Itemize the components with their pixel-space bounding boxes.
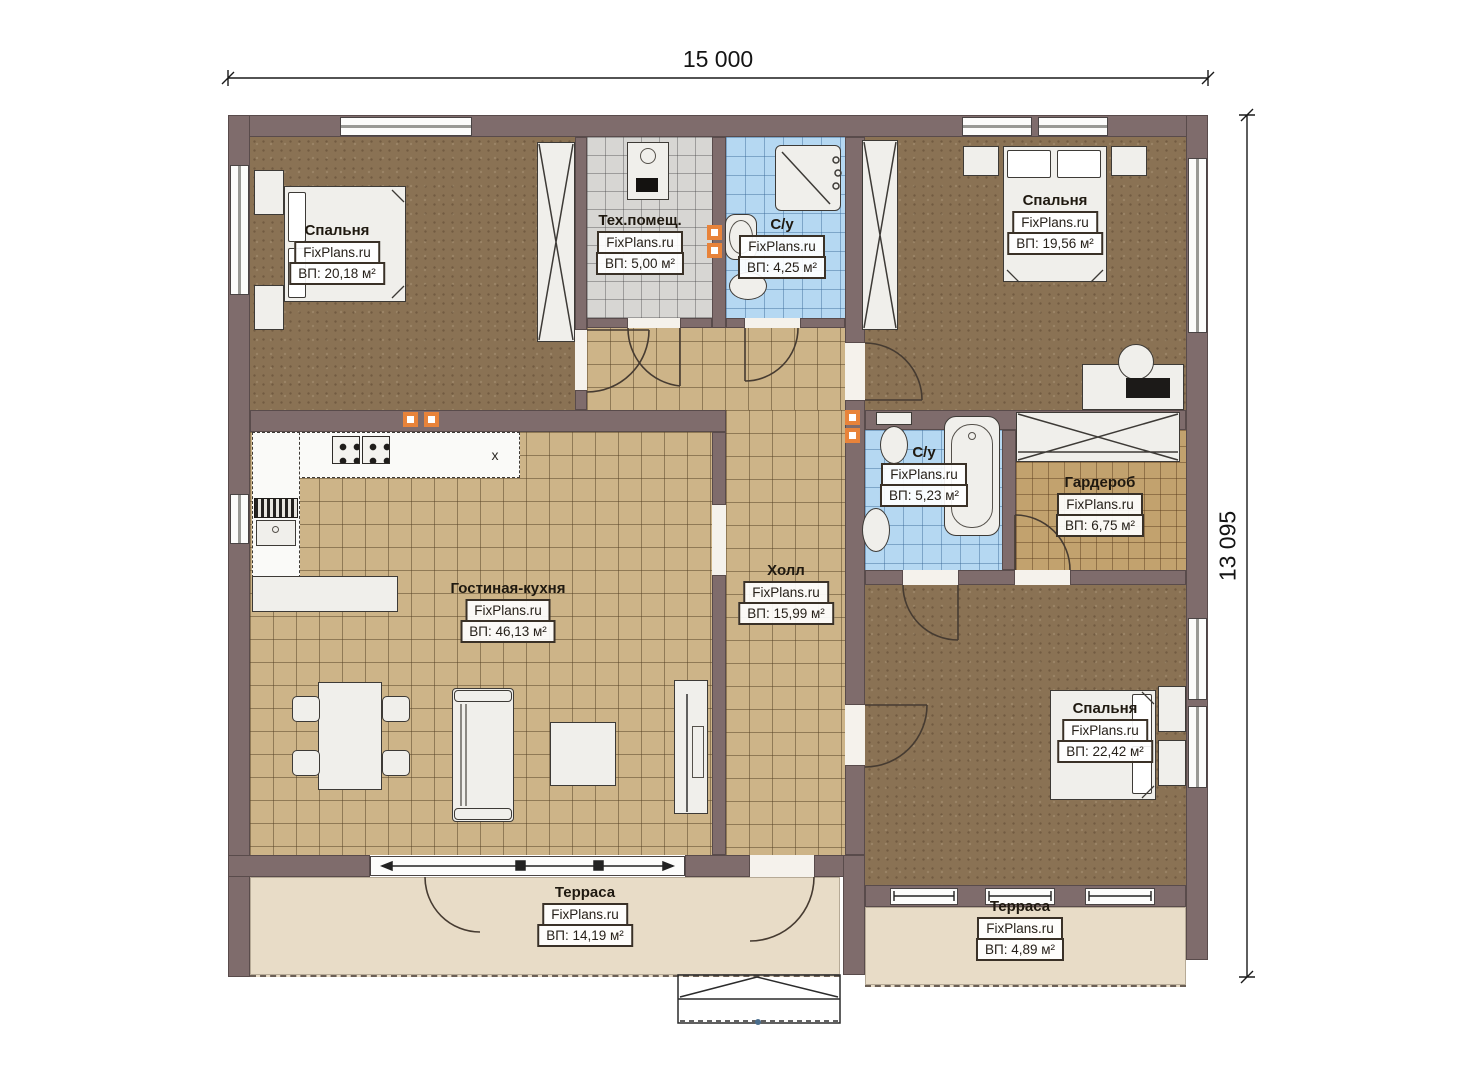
window	[340, 117, 472, 136]
room-name: Спальня	[1057, 700, 1153, 717]
room-label-living: Гостиная-кухня FixPlans.ru ВП: 46,13 м²	[451, 580, 566, 643]
wall-tech-bottom	[680, 318, 712, 328]
nightstand	[254, 285, 284, 330]
door-opening	[745, 318, 800, 328]
room-label-terrace2: Терраса FixPlans.ru ВП: 4,89 м²	[976, 898, 1064, 961]
watermark: FixPlans.ru	[977, 917, 1063, 940]
watermark: FixPlans.ru	[1062, 719, 1148, 742]
wall-bath2-bottom	[865, 570, 903, 585]
wall-bedroom1-right	[575, 137, 587, 330]
nightstand	[1158, 740, 1186, 786]
sofa	[452, 688, 514, 822]
room-label-hall: Холл FixPlans.ru ВП: 15,99 м²	[738, 562, 834, 625]
wall-bath1-bottom	[726, 318, 745, 328]
room-label-terrace1: Терраса FixPlans.ru ВП: 14,19 м²	[537, 884, 633, 947]
bathtub-drain	[968, 432, 976, 440]
room-name: Спальня	[289, 222, 385, 239]
room-area: ВП: 14,19 м²	[537, 924, 633, 947]
shower-cabin	[775, 145, 841, 211]
window	[1038, 117, 1108, 136]
toilet-tank	[876, 412, 912, 425]
room-area: ВП: 22,42 м²	[1057, 740, 1153, 763]
room-label-wardrobe: Гардероб FixPlans.ru ВП: 6,75 м²	[1056, 474, 1144, 537]
wall-bath1-bottom	[800, 318, 845, 328]
room-name: Тех.помещ.	[596, 212, 684, 229]
floor-hall	[726, 410, 845, 855]
room-area: ВП: 4,89 м²	[976, 938, 1064, 961]
terrace-window	[1085, 888, 1155, 905]
room-label-bath2: С/у FixPlans.ru ВП: 5,23 м²	[880, 444, 968, 507]
nightstand	[963, 146, 999, 176]
room-area: ВП: 6,75 м²	[1056, 514, 1144, 537]
pillow	[1057, 150, 1101, 178]
room-label-bedroom2: Спальня FixPlans.ru ВП: 19,56 м²	[1007, 192, 1103, 255]
room-name: С/у	[738, 216, 826, 233]
door-opening	[628, 318, 680, 328]
room-area: ВП: 46,13 м²	[460, 620, 556, 643]
kitchen-appliance-marker: x	[470, 432, 520, 478]
door-opening	[903, 570, 958, 585]
room-area: ВП: 4,25 м²	[738, 256, 826, 279]
watermark: FixPlans.ru	[1012, 211, 1098, 234]
watermark: FixPlans.ru	[465, 599, 551, 622]
kitchen-sink	[256, 520, 296, 546]
room-name: Терраса	[976, 898, 1064, 915]
room-area: ВП: 5,00 м²	[596, 252, 684, 275]
wall-bath2-wardrobe-divider	[1002, 430, 1016, 570]
room-area: ВП: 20,18 м²	[289, 262, 385, 285]
wall-terrace-divider	[843, 855, 865, 975]
door-opening	[845, 705, 865, 765]
watermark: FixPlans.ru	[743, 581, 829, 604]
stove-burners	[362, 436, 390, 464]
nightstand	[1111, 146, 1147, 176]
window	[230, 494, 249, 544]
watermark: FixPlans.ru	[1057, 493, 1143, 516]
room-area: ВП: 15,99 м²	[738, 602, 834, 625]
vent-marker	[845, 410, 860, 425]
kitchen-island	[252, 576, 398, 612]
room-name: Гостиная-кухня	[451, 580, 566, 597]
dining-table	[318, 682, 382, 790]
dish-rack	[254, 498, 298, 518]
nightstand	[254, 170, 284, 215]
room-label-bedroom3: Спальня FixPlans.ru ВП: 22,42 м²	[1057, 700, 1153, 763]
vent-marker	[845, 428, 860, 443]
dining-chair	[292, 696, 320, 722]
watermark: FixPlans.ru	[881, 463, 967, 486]
passage-opening	[712, 505, 726, 575]
wall-bottom	[228, 855, 370, 877]
sofa-armrest	[454, 808, 512, 820]
sofa-armrest	[454, 690, 512, 702]
watermark: FixPlans.ru	[597, 231, 683, 254]
window	[962, 117, 1032, 136]
room-label-bedroom1: Спальня FixPlans.ru ВП: 20,18 м²	[289, 222, 385, 285]
room-name: Спальня	[1007, 192, 1103, 209]
wardrobe-closet	[1016, 412, 1180, 462]
sliding-terrace-door	[370, 856, 685, 876]
coffee-table	[550, 722, 616, 786]
room-name: Гардероб	[1056, 474, 1144, 491]
wall-wardrobe-bottom	[1070, 570, 1186, 585]
wall-bath2-bottom	[958, 570, 1015, 585]
room-area: ВП: 5,23 м²	[880, 484, 968, 507]
dining-chair	[382, 750, 410, 776]
wardrobe-closet	[862, 140, 898, 330]
bathroom-sink	[862, 508, 890, 552]
stove-burners	[332, 436, 360, 464]
door-opening	[1015, 570, 1070, 585]
room-area: ВП: 19,56 м²	[1007, 232, 1103, 255]
dining-chair	[382, 696, 410, 722]
pillow	[1007, 150, 1051, 178]
window	[1188, 158, 1207, 333]
window	[230, 165, 249, 295]
tv-screen	[692, 726, 704, 778]
vent-marker	[707, 243, 722, 258]
floor-plan: x	[0, 0, 1473, 1080]
wall-bottom	[685, 855, 750, 877]
boiler-panel	[636, 178, 658, 192]
window	[1188, 618, 1207, 700]
watermark: FixPlans.ru	[739, 235, 825, 258]
room-name: Холл	[738, 562, 834, 579]
wall-living-hall-divider	[712, 575, 726, 855]
dimension-height-label: 13 095	[1215, 511, 1242, 581]
watermark: FixPlans.ru	[542, 903, 628, 926]
floor-hall-corridor	[587, 318, 845, 410]
wall-hall-right	[845, 400, 865, 705]
room-label-tech: Тех.помещ. FixPlans.ru ВП: 5,00 м²	[596, 212, 684, 275]
nightstand	[1158, 686, 1186, 732]
room-name: Терраса	[537, 884, 633, 901]
wardrobe-closet	[537, 142, 575, 342]
entrance-porch-steps	[678, 975, 840, 1025]
terrace-window	[890, 888, 958, 905]
window	[1188, 706, 1207, 788]
dining-chair	[292, 750, 320, 776]
boiler-pipe	[640, 148, 656, 164]
door-opening	[845, 343, 865, 400]
wall-living-hall-divider	[712, 432, 726, 505]
watermark: FixPlans.ru	[294, 241, 380, 264]
room-name: С/у	[880, 444, 968, 461]
faucet	[272, 526, 279, 533]
room-label-bath1: С/у FixPlans.ru ВП: 4,25 м²	[738, 216, 826, 279]
entrance-door-opening	[750, 855, 814, 877]
vent-marker	[403, 412, 418, 427]
wall-hall-right	[845, 765, 865, 855]
desk-chair	[1118, 344, 1154, 380]
dimension-width-label: 15 000	[683, 46, 753, 73]
wall-bedroom1-right	[575, 390, 587, 410]
wall-tech-bottom	[587, 318, 628, 328]
vent-marker	[707, 225, 722, 240]
wall-middle	[250, 410, 726, 432]
vent-marker	[424, 412, 439, 427]
door-opening	[575, 330, 587, 390]
laptop	[1126, 378, 1170, 398]
